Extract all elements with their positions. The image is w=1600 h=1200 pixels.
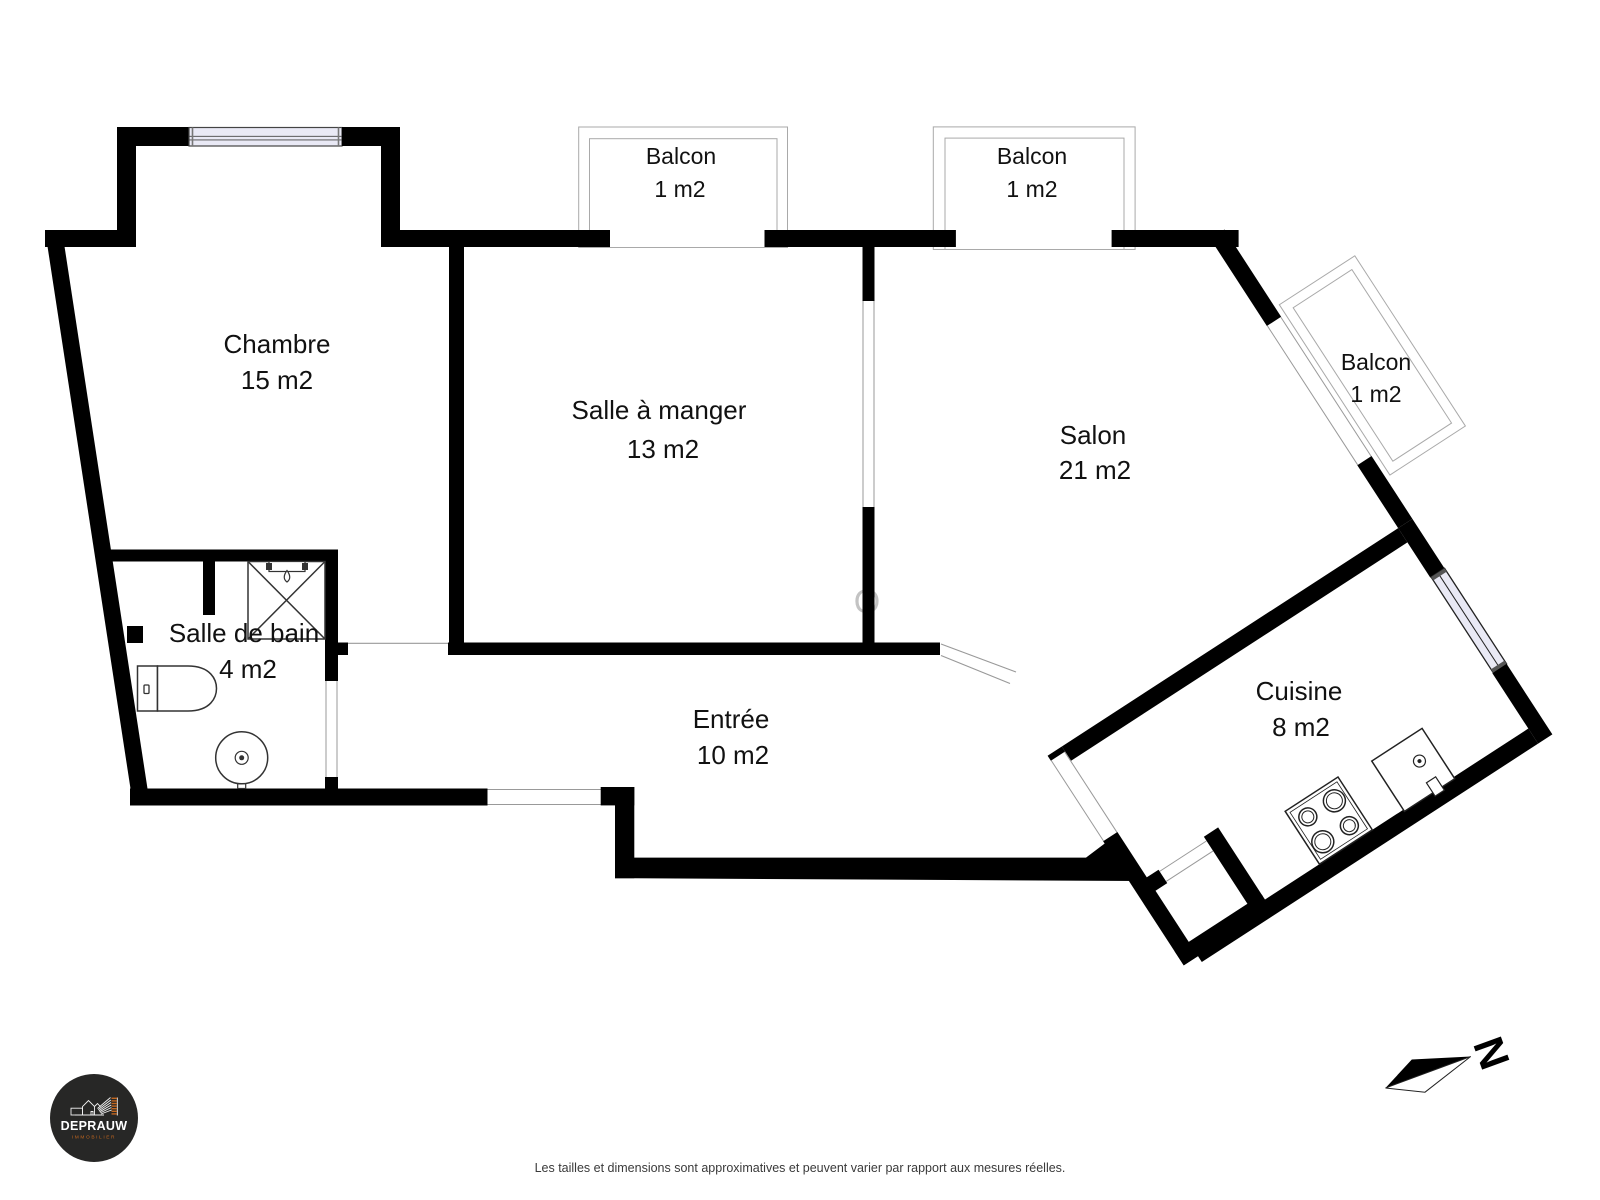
- svg-text:IMMOBILIER: IMMOBILIER: [72, 1135, 116, 1141]
- svg-text:Salle de bain: Salle de bain: [169, 618, 319, 648]
- svg-text:4 m2: 4 m2: [219, 654, 277, 684]
- svg-text:Les tailles et dimensions sont: Les tailles et dimensions sont approxima…: [535, 1161, 1066, 1175]
- svg-text:Balcon: Balcon: [646, 143, 716, 169]
- svg-text:10 m2: 10 m2: [697, 740, 769, 770]
- svg-text:15 m2: 15 m2: [241, 365, 313, 395]
- svg-text:Cuisine: Cuisine: [1256, 676, 1343, 706]
- svg-text:13 m2: 13 m2: [627, 434, 699, 464]
- svg-text:1 m2: 1 m2: [1006, 176, 1057, 202]
- svg-text:Chambre: Chambre: [224, 329, 331, 359]
- svg-text:21 m2: 21 m2: [1059, 455, 1131, 485]
- svg-text:Salon: Salon: [1060, 420, 1127, 450]
- svg-text:1 m2: 1 m2: [654, 176, 705, 202]
- svg-text:8 m2: 8 m2: [1272, 712, 1330, 742]
- svg-text:Balcon: Balcon: [997, 143, 1067, 169]
- svg-text:1 m2: 1 m2: [1350, 381, 1401, 407]
- svg-text:DEPRAUW: DEPRAUW: [61, 1119, 128, 1133]
- svg-text:Salle à manger: Salle à manger: [572, 395, 747, 425]
- svg-text:Balcon: Balcon: [1341, 349, 1411, 375]
- svg-text:Entrée: Entrée: [693, 704, 770, 734]
